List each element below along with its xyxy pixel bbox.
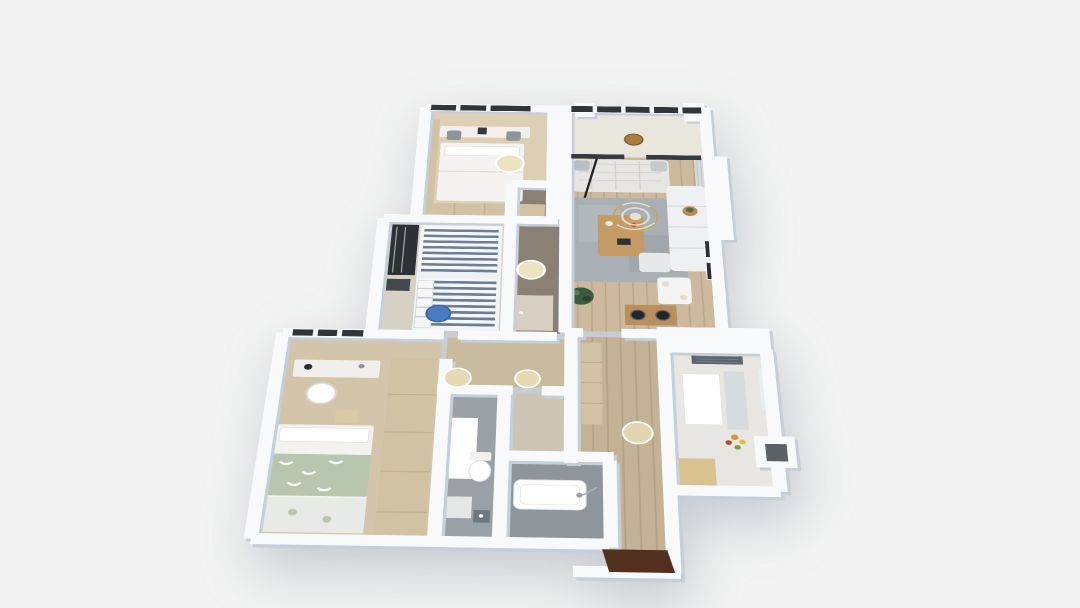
- refrigerator-top: [682, 374, 723, 425]
- corridor-cabinet: [581, 342, 602, 424]
- wardrobe-seam: [454, 203, 455, 216]
- entrance-door-mat: [602, 549, 675, 573]
- window-mullion: [593, 106, 598, 112]
- master-chair: [334, 410, 359, 423]
- wardrobe-seam: [484, 204, 485, 217]
- bunk-divider: [418, 271, 498, 279]
- ceiling-light-marker-bedroom-top[interactable]: [496, 155, 524, 173]
- desk-chair-right: [506, 131, 521, 141]
- window-mullion: [337, 330, 343, 336]
- window-mullion: [621, 107, 626, 113]
- ceiling-light-marker-hallway[interactable]: [517, 260, 545, 278]
- exterior-vent: [765, 444, 788, 462]
- render-canvas-background: [0, 0, 1080, 608]
- blue-ceiling-fixture-marker[interactable]: [426, 305, 451, 322]
- kids-dresser: [386, 279, 411, 291]
- speaker-left: [631, 310, 645, 320]
- desk-lamp: [478, 128, 487, 135]
- window-mullion: [456, 105, 461, 110]
- toilet-tank: [470, 452, 492, 461]
- pendant-light-marker[interactable]: [625, 134, 643, 145]
- master-blanket-foot: [261, 497, 367, 534]
- window-mullion: [678, 107, 683, 113]
- floorplan-shadow: [0, 0, 1080, 608]
- bathtub: [513, 480, 586, 511]
- table-book: [617, 238, 631, 244]
- daybed-pillow: [650, 161, 667, 172]
- floor-closet: [509, 394, 566, 453]
- master-pillows: [279, 427, 370, 442]
- desk-chair-left: [446, 130, 461, 140]
- dining-set: [657, 277, 692, 304]
- sofa-white: [666, 186, 712, 272]
- floorplan-3d-viewport[interactable]: [175, 98, 843, 606]
- coffee-table: [598, 215, 645, 257]
- ceiling-light-marker-inner-hall-1[interactable]: [443, 368, 471, 387]
- window-mullion: [486, 105, 491, 110]
- master-blanket-floral: [266, 454, 371, 497]
- floorplan-model: [175, 98, 843, 606]
- balcony-slider-left: [571, 154, 624, 159]
- toilet: [468, 461, 491, 482]
- daybed-pillow: [573, 160, 590, 171]
- window-mullion: [312, 330, 318, 336]
- ceiling-light-marker-corridor[interactable]: [623, 422, 653, 444]
- speaker-right: [656, 310, 670, 320]
- balcony-slider-right: [646, 155, 701, 160]
- sofa-ottoman: [639, 253, 671, 273]
- window-mullion: [649, 107, 654, 113]
- ceiling-light-marker-inner-hall-2[interactable]: [515, 370, 540, 388]
- kitchen-floor-strip: [674, 458, 717, 486]
- master-window-band: [292, 329, 363, 336]
